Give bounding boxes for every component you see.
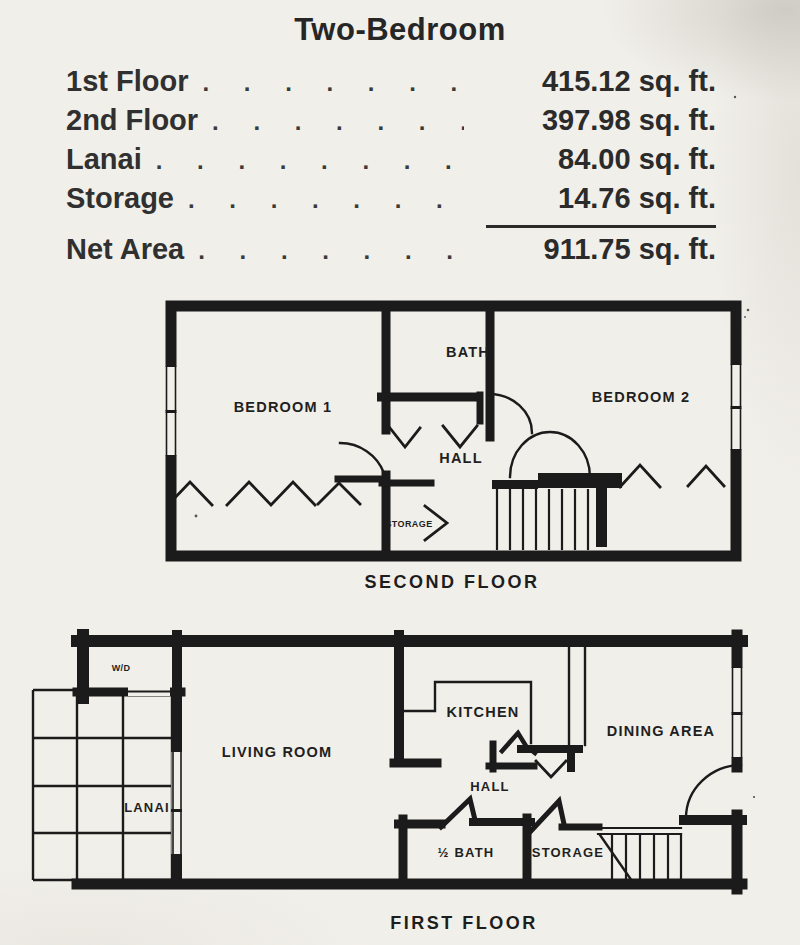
room-label-kitchen: KITCHEN	[447, 704, 520, 720]
room-label-dining-area: DINING AREA	[607, 723, 716, 739]
second-floor-plan: BEDROOM 1 BATH BEDROOM 2 HALL STORAGE SE…	[164, 96, 749, 592]
stairs	[598, 828, 681, 881]
room-label-bedroom2: BEDROOM 2	[592, 389, 691, 405]
floor-plan-drawings: BEDROOM 1 BATH BEDROOM 2 HALL STORAGE SE…	[0, 0, 800, 945]
room-label-storage: STORAGE	[532, 845, 604, 860]
scan-specks	[753, 796, 755, 798]
first-floor-caption: FIRST FLOOR	[390, 913, 538, 933]
room-label-storage: STORAGE	[385, 519, 432, 529]
room-label-half-bath: ½ BATH	[438, 845, 495, 860]
room-label-wd: W/D	[112, 663, 131, 673]
window-openings	[172, 668, 745, 854]
room-label-bath: BATH	[446, 344, 490, 360]
room-label-hall: HALL	[470, 779, 509, 794]
appliance-divider	[569, 647, 585, 745]
second-floor-caption: SECOND FLOOR	[364, 572, 539, 592]
scanned-floor-plan-page: Two-Bedroom 1st Floor . . . . . . . . . …	[0, 0, 800, 945]
closet-door-symbols	[168, 465, 724, 505]
room-label-lanai: LANAI	[124, 800, 170, 815]
stairs	[492, 473, 622, 549]
room-label-hall: HALL	[439, 450, 482, 466]
room-label-living-room: LIVING ROOM	[222, 744, 333, 760]
room-label-bedroom1: BEDROOM 1	[234, 399, 333, 415]
first-floor-plan: W/D LIVING ROOM KITCHEN DINING AREA HALL…	[33, 635, 755, 933]
lanai-grid	[33, 690, 172, 880]
